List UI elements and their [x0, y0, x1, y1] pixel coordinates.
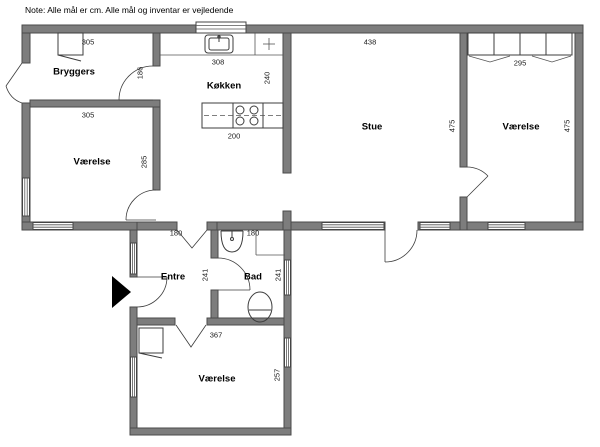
room-label-vaerelse-right: Værelse — [503, 122, 540, 133]
room-label-bryggers: Bryggers — [53, 67, 95, 78]
drain-cross-icon — [263, 38, 275, 50]
note-text: Note: Alle mål er cm. Alle mål og invent… — [25, 5, 233, 15]
sink-icon — [205, 35, 233, 53]
window-icon — [23, 22, 526, 397]
floor-plan: Note: Alle mål er cm. Alle mål og invent… — [0, 0, 600, 447]
dim-stue-height: 475 — [448, 120, 457, 133]
dim-entre-height: 241 — [201, 269, 210, 282]
wardrobe-icon-vaerelse-bottom — [139, 328, 163, 358]
entrance-arrow-icon — [112, 276, 131, 308]
room-label-vaerelse-left: Værelse — [74, 157, 111, 168]
room-label-stue: Stue — [362, 122, 383, 133]
dim-bad-height: 241 — [274, 269, 283, 282]
room-label-koekken: Køkken — [207, 81, 241, 92]
dim-koekken-height: 240 — [263, 72, 272, 85]
dim-bryggers-height: 186 — [136, 67, 145, 80]
room-label-bad: Bad — [244, 272, 262, 283]
room-label-vaerelse-bottom: Værelse — [199, 374, 236, 385]
dim-vaerelse-left-height: 285 — [140, 156, 149, 169]
room-label-entre: Entre — [161, 272, 185, 283]
dim-stue-width: 438 — [364, 38, 377, 47]
dim-vaerelse-bottom-height: 257 — [273, 369, 282, 382]
dim-koekken-island: 200 — [228, 132, 241, 141]
stove-island-icon — [202, 103, 283, 128]
dim-entre-width: 180 — [170, 229, 183, 238]
dim-vaerelse-bottom-width: 367 — [210, 331, 223, 340]
dim-vaerelse-left-width: 305 — [82, 111, 95, 120]
dim-koekken-width: 308 — [212, 58, 225, 67]
dim-vaerelse-right-width: 295 — [514, 59, 527, 68]
dim-vaerelse-right-height: 475 — [563, 120, 572, 133]
shower-corner-icon — [256, 230, 285, 255]
washbasin-icon — [221, 231, 243, 252]
dim-bad-width: 180 — [247, 229, 260, 238]
wardrobe-icon-bryggers — [58, 33, 83, 61]
dim-bryggers-width: 305 — [82, 38, 95, 47]
